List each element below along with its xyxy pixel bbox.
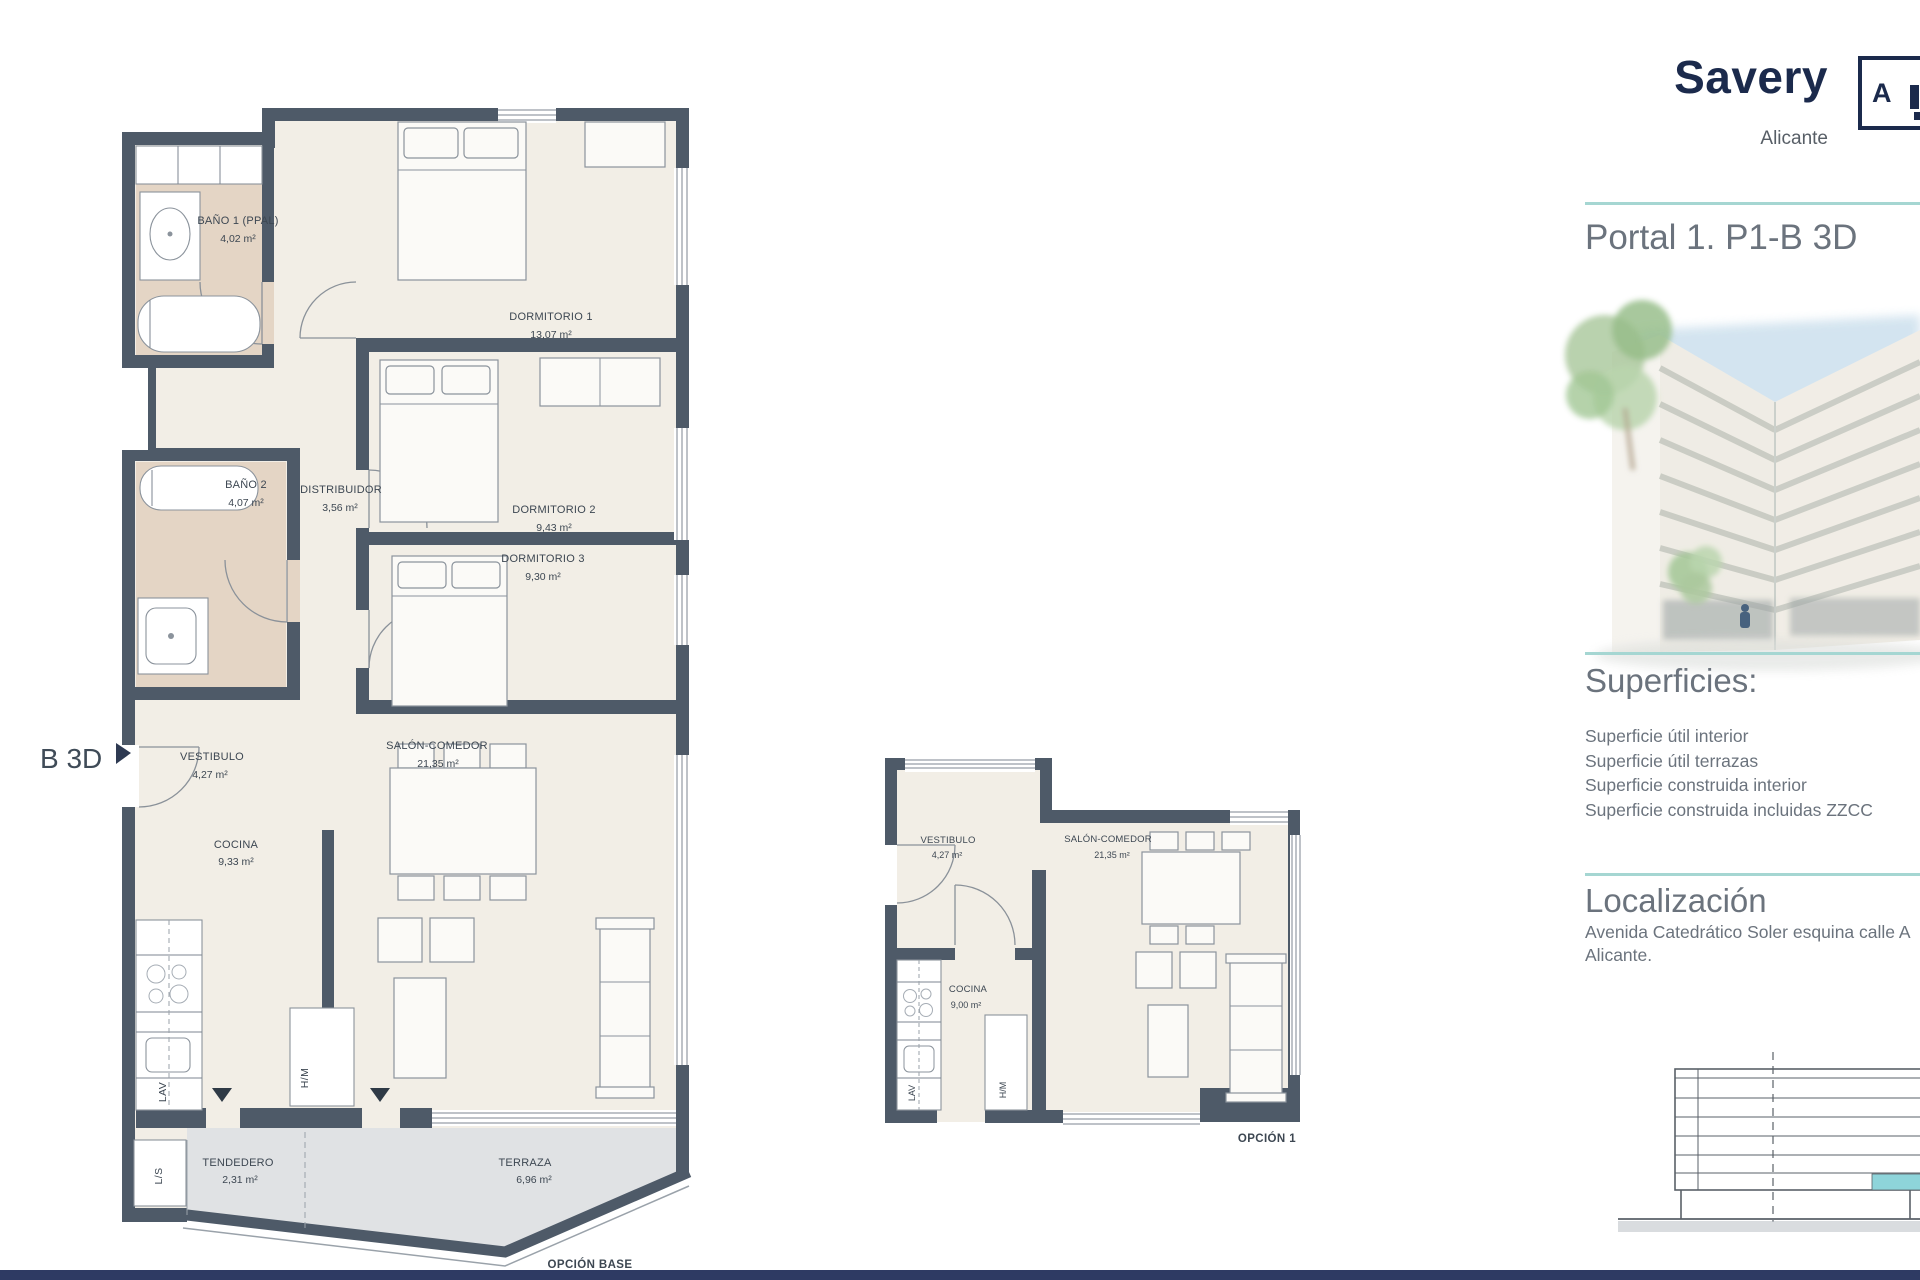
fixture-label-ls: L/S <box>153 1168 165 1185</box>
superficies-item: Superficie útil terrazas <box>1585 749 1873 774</box>
main-floor-plan: B 3D BAÑO 1 (PPAL) 4,02 m² DORMITORIO 1 … <box>40 106 691 1271</box>
unit-title: Portal 1. P1-B 3D <box>1585 218 1857 258</box>
divider-line <box>1585 652 1920 655</box>
room-label: COCINA <box>214 839 259 851</box>
floor-terraza <box>187 1128 689 1252</box>
brand-city: Alicante <box>1585 128 1828 150</box>
drawings-layer: B 3D BAÑO 1 (PPAL) 4,02 m² DORMITORIO 1 … <box>0 0 1920 1280</box>
localizacion-heading: Localización <box>1585 882 1767 920</box>
divider-line <box>1585 202 1920 205</box>
kitchen-counter <box>136 920 202 1110</box>
room-label: SALÓN-COMEDOR <box>386 739 488 752</box>
room-area: 9,43 m² <box>536 522 572 534</box>
building-render <box>1565 300 1920 671</box>
room-label: VESTIBULO <box>180 751 244 763</box>
room-area: 21,35 m² <box>417 758 459 770</box>
room-area: 9,30 m² <box>525 571 561 583</box>
room-label: DORMITORIO 2 <box>512 504 595 516</box>
fixture-label-hm: H/M <box>299 1068 311 1088</box>
room-label: TENDEDERO <box>202 1157 274 1169</box>
room-area: 6,96 m² <box>516 1174 552 1186</box>
unit-marker: B 3D <box>40 743 131 774</box>
unit-highlight-cell <box>1872 1174 1920 1190</box>
brand-title: Savery <box>1585 50 1828 104</box>
dormitorio3-furniture <box>392 556 507 706</box>
elevation-diagram <box>1618 1052 1920 1232</box>
room-area: 4,07 m² <box>228 497 264 509</box>
opcion1-floor-plan: VESTIBULO 4,27 m² SALÓN-COMEDOR 21,35 m²… <box>885 756 1303 1145</box>
room-area: 9,00 m² <box>951 1000 982 1010</box>
room-label: TERRAZA <box>498 1157 552 1169</box>
fixture-label-lav: LAV <box>907 1085 917 1101</box>
superficies-item: Superficie útil interior <box>1585 724 1873 749</box>
room-label: DORMITORIO 3 <box>501 553 584 565</box>
brand-logo-cut-letter <box>1910 85 1919 109</box>
room-label: COCINA <box>949 984 988 995</box>
unit-marker-label: B 3D <box>40 743 102 774</box>
room-area: 3,56 m² <box>322 502 358 514</box>
room-area: 4,27 m² <box>932 850 963 860</box>
brand-logo-mark <box>1914 112 1920 120</box>
person-icon <box>1740 604 1750 628</box>
localizacion-address: Avenida Catedrático Soler esquina calle … <box>1585 921 1920 944</box>
plan-sheet: B 3D BAÑO 1 (PPAL) 4,02 m² DORMITORIO 1 … <box>0 0 1920 1280</box>
superficies-heading: Superficies: <box>1585 662 1757 700</box>
room-area: 2,31 m² <box>222 1174 258 1186</box>
room-label: VESTIBULO <box>920 835 975 846</box>
superficies-list: Superficie útil interior Superficie útil… <box>1585 724 1873 822</box>
room-label: BAÑO 2 <box>225 478 267 491</box>
hm-closet <box>290 1008 354 1106</box>
fixture-label-hm: H/M <box>998 1082 1008 1099</box>
brand-logo: A <box>1858 56 1920 130</box>
brand-logo-letter: A <box>1872 78 1892 109</box>
room-area: 4,02 m² <box>220 233 256 245</box>
superficies-item: Superficie construida interior <box>1585 773 1873 798</box>
room-area: 13,07 m² <box>530 329 572 341</box>
room-area: 21,35 m² <box>1094 850 1130 860</box>
fixture-label-lav: LAV <box>157 1082 169 1102</box>
localizacion-city: Alicante. <box>1585 945 1652 965</box>
divider-line <box>1585 873 1920 876</box>
superficies-item: Superficie construida incluidas ZZCC <box>1585 798 1873 823</box>
localizacion-body: Avenida Catedrático Soler esquina calle … <box>1585 921 1920 967</box>
room-area: 4,27 m² <box>192 769 228 781</box>
plan-caption-opcion1: OPCIÓN 1 <box>1238 1132 1296 1145</box>
footer-bar <box>0 1270 1920 1280</box>
room-area: 9,33 m² <box>218 856 254 868</box>
room-label: SALÓN-COMEDOR <box>1064 834 1152 845</box>
room-label: DORMITORIO 1 <box>509 311 592 323</box>
room-label: BAÑO 1 (PPAL) <box>197 214 278 227</box>
room-label: DISTRIBUIDOR <box>300 484 382 496</box>
